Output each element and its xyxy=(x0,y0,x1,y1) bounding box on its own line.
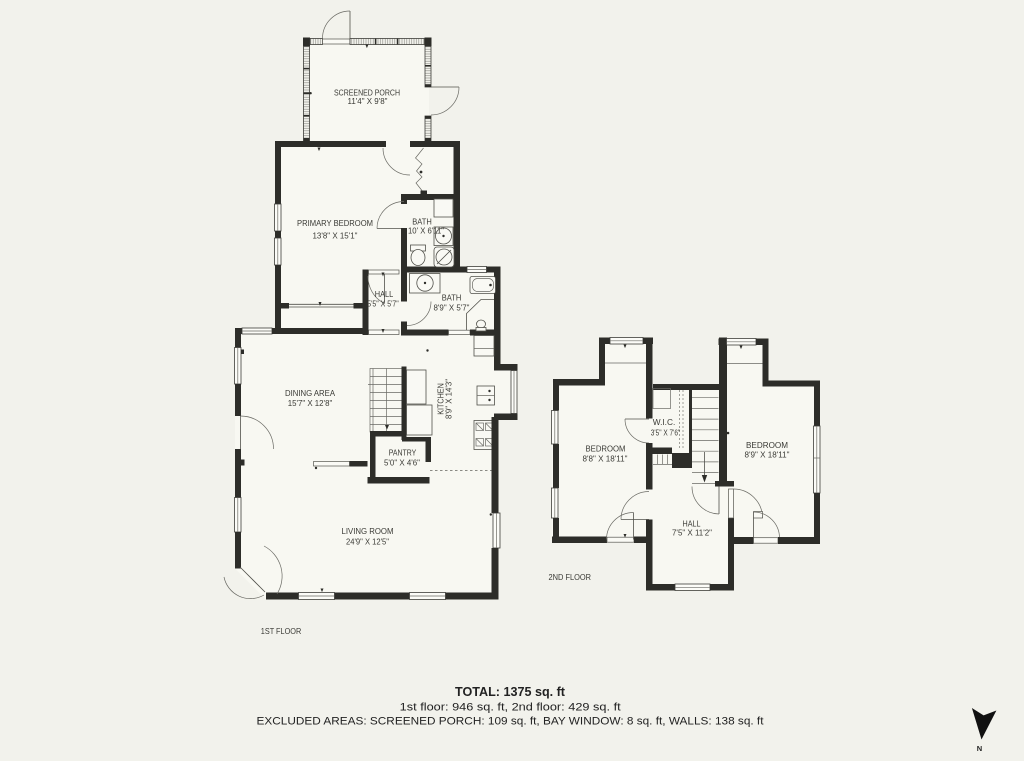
svg-text:8'9" X 14'3": 8'9" X 14'3" xyxy=(445,379,454,419)
svg-text:7'5" X 11'2": 7'5" X 11'2" xyxy=(672,529,712,538)
svg-text:BEDROOM: BEDROOM xyxy=(586,443,626,453)
svg-text:BATH: BATH xyxy=(412,217,432,227)
svg-text:HALL: HALL xyxy=(683,519,701,529)
svg-text:HALL: HALL xyxy=(375,289,394,299)
svg-text:DINING AREA: DINING AREA xyxy=(285,388,335,398)
svg-text:5'5" X 5'7": 5'5" X 5'7" xyxy=(367,300,399,309)
svg-text:1ST FLOOR: 1ST FLOOR xyxy=(261,626,302,636)
svg-text:PANTRY: PANTRY xyxy=(389,448,417,458)
svg-text:10' X 6'11": 10' X 6'11" xyxy=(408,227,444,236)
svg-text:3'5" X 7'6": 3'5" X 7'6" xyxy=(651,429,681,438)
svg-text:LIVING ROOM: LIVING ROOM xyxy=(342,526,394,536)
svg-text:TOTAL: 1375 sq. ft: TOTAL: 1375 sq. ft xyxy=(455,685,566,699)
svg-text:BATH: BATH xyxy=(442,293,462,303)
svg-text:8'9" X 18'11": 8'9" X 18'11" xyxy=(745,451,790,460)
svg-text:2ND FLOOR: 2ND FLOOR xyxy=(549,572,592,582)
svg-text:BEDROOM: BEDROOM xyxy=(746,440,788,450)
svg-text:8'9" X 5'7": 8'9" X 5'7" xyxy=(434,304,470,313)
svg-text:PRIMARY BEDROOM: PRIMARY BEDROOM xyxy=(297,218,373,228)
svg-text:SCREENED PORCH: SCREENED PORCH xyxy=(334,88,400,98)
svg-text:8'8" X 18'11": 8'8" X 18'11" xyxy=(583,455,628,464)
svg-text:5'0" X 4'6": 5'0" X 4'6" xyxy=(384,459,420,468)
svg-text:W.I.C.: W.I.C. xyxy=(653,417,676,427)
svg-text:15'7" X 12'8": 15'7" X 12'8" xyxy=(288,399,333,408)
svg-text:N: N xyxy=(977,744,982,753)
svg-text:13'8" X 15'1": 13'8" X 15'1" xyxy=(313,232,358,241)
svg-text:24'9" X 12'5": 24'9" X 12'5" xyxy=(346,538,389,547)
svg-text:11'4" X 9'8": 11'4" X 9'8" xyxy=(348,97,388,106)
svg-text:EXCLUDED AREAS: SCREENED PORCH: EXCLUDED AREAS: SCREENED PORCH: 109 sq. … xyxy=(257,716,764,728)
svg-text:1st floor: 946 sq. ft, 2nd flo: 1st floor: 946 sq. ft, 2nd floor: 429 sq… xyxy=(400,701,621,713)
